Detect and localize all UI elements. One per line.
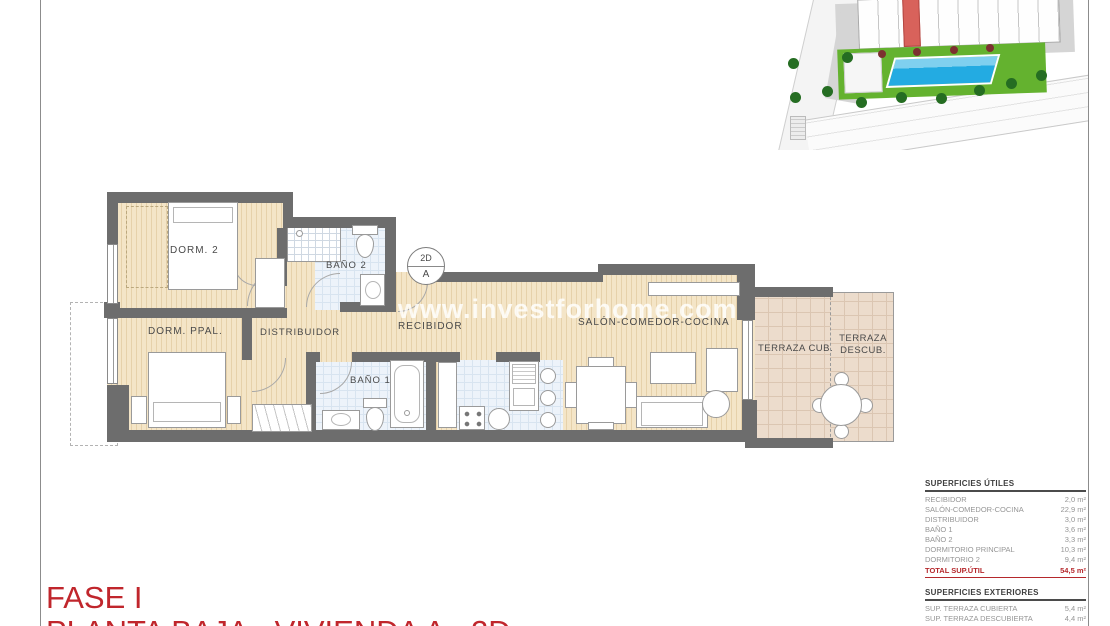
bar-stool	[540, 368, 556, 384]
wall	[107, 192, 118, 244]
dining-chair	[588, 357, 614, 367]
sheet-phase: FASE I	[46, 580, 142, 616]
dormppal-pillow	[153, 402, 221, 422]
dining-table	[576, 366, 626, 424]
outline-cover	[293, 192, 395, 217]
label-bano2: BAÑO 2	[326, 260, 367, 271]
areas-exteriores-header: SUPERFICIES EXTERIORES	[925, 588, 1086, 601]
unit-badge: 2D A	[407, 247, 445, 285]
label-distribuidor: DISTRIBUIDOR	[260, 327, 340, 338]
salon-terrace-window	[742, 320, 753, 400]
wall	[436, 352, 460, 362]
armchair	[706, 348, 738, 392]
label-dorm-ppal: DORM. PPAL.	[148, 326, 223, 337]
dorm2-pillow	[173, 207, 233, 223]
label-terraza-cub: TERRAZA CUB.	[758, 343, 833, 354]
watermark: www.investforhome.com	[398, 294, 738, 325]
terraza-cubierta-floor	[755, 297, 830, 438]
area-row: SUP. TERRAZA CUBIERTA5,4 m²	[925, 604, 1086, 614]
wall	[107, 385, 129, 435]
nightstand	[227, 396, 241, 424]
dorm2-wardrobe-dashed	[126, 206, 168, 288]
kitchen-unit-grill	[512, 364, 536, 384]
nightstand	[131, 396, 147, 424]
total-util-row: TOTAL SUP.ÚTIL54,5 m²	[925, 565, 1086, 578]
bar-stool	[540, 390, 556, 406]
side-table	[702, 390, 730, 418]
outline-cover	[745, 192, 895, 287]
wall	[385, 217, 396, 312]
label-terraza-descub: TERRAZA DESCUB.	[836, 333, 890, 358]
area-row: SUP. TERRAZA DESCUBIERTA4,4 m²	[925, 614, 1086, 624]
bar-stool	[540, 412, 556, 428]
wall	[242, 318, 252, 360]
dining-chair	[588, 422, 614, 430]
shower-drain	[296, 230, 303, 237]
terrace-table	[820, 384, 862, 426]
bano2-sink-basin	[365, 281, 381, 299]
wall	[745, 287, 833, 297]
kitchen-sink	[488, 408, 510, 430]
areas-utiles-header: SUPERFICIES ÚTILES	[925, 479, 1086, 492]
drawing-sheet: 2D A DORM. 2 DORM. PPAL. DISTRIBUIDOR RE…	[0, 0, 1110, 626]
label-dorm2: DORM. 2	[170, 245, 219, 256]
unit-badge-letter: A	[423, 267, 430, 282]
kitchen-unit-sink	[513, 388, 535, 406]
label-bano1: BAÑO 1	[350, 375, 391, 386]
unit-badge-type: 2D	[408, 251, 444, 267]
sofa-seat	[641, 402, 703, 426]
wall	[283, 217, 395, 228]
areas-panel: SUPERFICIES ÚTILES RECIBIDOR2,0 m² SALÓN…	[925, 479, 1086, 626]
coffee-table	[650, 352, 696, 384]
area-row: SALÓN-COMEDOR-COCINA22,9 m²	[925, 505, 1086, 515]
outline-cover	[395, 192, 745, 272]
kitchen-tall-cabinet	[438, 362, 457, 428]
area-row: DORMITORIO PRINCIPAL10,3 m²	[925, 545, 1086, 555]
area-row: RECIBIDOR2,0 m²	[925, 495, 1086, 505]
dining-chair	[565, 382, 577, 408]
wall	[745, 438, 833, 448]
wall	[598, 264, 745, 275]
area-row: BAÑO 23,3 m²	[925, 535, 1086, 545]
sheet-title: PLANTA BAJA - VIVIENDA A - 2D	[46, 614, 511, 626]
kitchen-stove	[459, 406, 485, 430]
dormppal-wardrobe	[252, 404, 312, 432]
outline-cover	[107, 442, 897, 482]
hall-closet	[255, 258, 285, 308]
dormppal-window	[107, 318, 118, 384]
dorm2-window	[107, 244, 118, 304]
bano1-bathtub-drain	[404, 410, 410, 416]
area-row: DISTRIBUIDOR3,0 m²	[925, 515, 1086, 525]
wall	[428, 272, 603, 282]
terrace-chair	[834, 424, 849, 439]
wall	[107, 308, 287, 318]
bano1-sink-basin	[331, 413, 351, 426]
shower	[287, 224, 341, 262]
wall	[426, 352, 436, 432]
area-row: DORMITORIO 29,4 m²	[925, 555, 1086, 565]
area-row: BAÑO 13,6 m²	[925, 525, 1086, 535]
